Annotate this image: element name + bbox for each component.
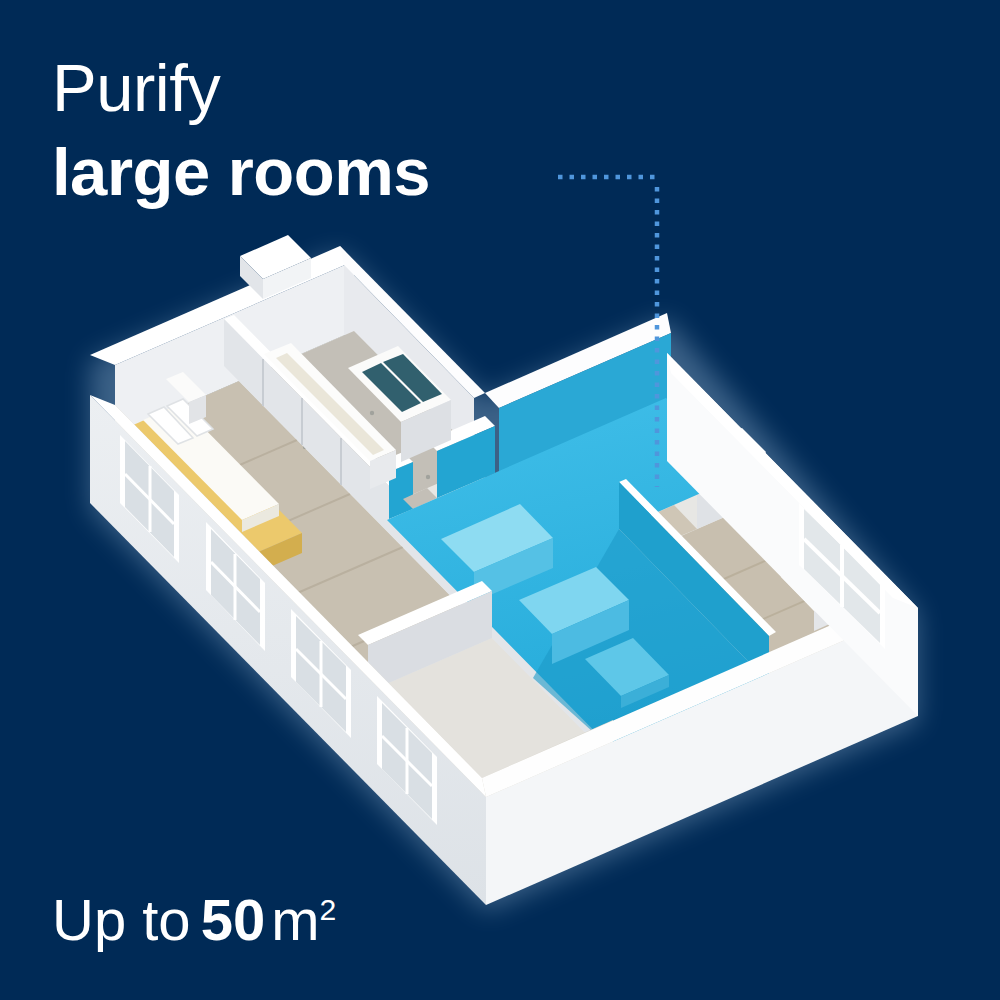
area-caption-prefix: Up to (52, 887, 191, 952)
area-caption-value: 50 (201, 887, 266, 952)
area-caption: Up to50m2 (52, 886, 336, 953)
headline-line1: Purify (52, 46, 430, 130)
headline: Purify large rooms (52, 46, 430, 214)
area-caption-unit-superscript: 2 (319, 893, 336, 926)
headline-line2: large rooms (52, 130, 430, 214)
area-caption-unit: m2 (271, 887, 336, 952)
